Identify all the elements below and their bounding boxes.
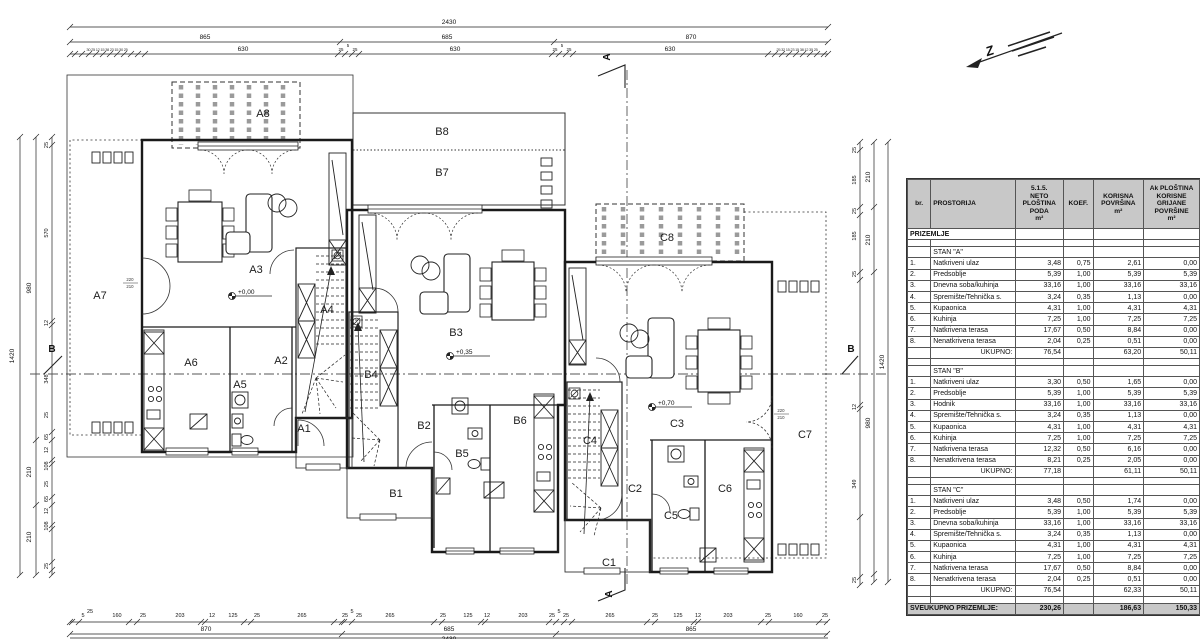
level-label-c: +0,70 [658, 400, 675, 407]
dim-label: 25 [140, 613, 146, 619]
dim-label: 210 [865, 171, 872, 182]
total-row: UKUPNO:77,1861,1150,11 [908, 466, 1200, 477]
dim-label: 12 [44, 508, 50, 514]
dim-label: 570 [44, 228, 50, 237]
table-row: 5.Kupaonica4,311,004,314,31 [908, 422, 1200, 433]
room-label-b7: B7 [435, 167, 448, 179]
dim-label: 348 [44, 374, 50, 383]
dim-label: 25 [440, 613, 446, 619]
dim-label: 5 [347, 43, 350, 48]
table-row: 7.Natkrivena terasa12,320,506,160,00 [908, 444, 1200, 455]
gap-row [908, 477, 1200, 484]
level-label-a: +0,00 [238, 289, 255, 296]
door-tag: 210 [777, 415, 785, 420]
table-row: 6.Kuhinja7,251,007,257,25 [908, 552, 1200, 563]
dim-label: 25 [342, 613, 348, 619]
dim-label: 1420 [9, 348, 16, 363]
dim-label: 65 [44, 434, 50, 440]
furniture [166, 190, 752, 404]
table-row: 3.Dnevna soba/kuhinja33,161,0033,1633,16 [908, 280, 1200, 291]
dim-label: 12 [44, 320, 50, 326]
dim-label: 980 [865, 417, 872, 428]
table-row: 2.Predsoblje5,391,005,395,39 [908, 507, 1200, 518]
dim-label: 5 [350, 609, 353, 615]
room-label-b2: B2 [417, 420, 430, 432]
table-row: 8.Nenatkrivena terasa2,040,250,510,00 [908, 336, 1200, 347]
section-title-row: STAN "A" [908, 247, 1200, 258]
dim-label: 12 [209, 613, 215, 619]
dim-label: 25 [563, 613, 569, 619]
dim-label: 125 [463, 613, 472, 619]
gap-row [908, 596, 1200, 603]
room-label-b6: B6 [513, 415, 526, 427]
north-label: Z [983, 42, 997, 59]
room-label-b8: B8 [435, 126, 448, 138]
table-row: 5.Kupaonica4,311,004,314,31 [908, 540, 1200, 551]
room-label-a8: A8 [256, 108, 269, 120]
dim-label: 25 [356, 613, 362, 619]
table-row: 8.Nenatkrivena terasa2,040,250,510,00 [908, 574, 1200, 585]
grand-total-row: SVEUKUPNO PRIZEMLJE:230,26186,63150,33 [908, 603, 1200, 614]
dim-label: 865 [200, 34, 211, 41]
dim-label: 203 [723, 613, 732, 619]
room-label-b5: B5 [455, 448, 468, 460]
door-tag: 220 [777, 408, 785, 413]
dim-label: 2430 [442, 19, 457, 26]
room-label-a5: A5 [233, 379, 246, 391]
dim-label: 25 [353, 47, 358, 52]
level-label-b: +0,35 [456, 349, 473, 356]
gap-row [908, 240, 1200, 247]
floor-row: PRIZEMLJE [908, 229, 1200, 240]
room-label-a3: A3 [249, 264, 262, 276]
dim-label: 25 [852, 147, 858, 153]
dim-label: 685 [444, 626, 455, 633]
dim-label: 160 [112, 613, 121, 619]
table-row: 2.Predsoblje5,391,005,395,39 [908, 269, 1200, 280]
table-row: 7.Natkrivena terasa17,670,508,840,00 [908, 563, 1200, 574]
table-row: 6.Kuhinja7,251,007,257,25 [908, 433, 1200, 444]
table-row: 3.Dnevna soba/kuhinja33,161,0033,1633,16 [908, 518, 1200, 529]
table-row: 6.Kuhinja7,251,007,257,25 [908, 314, 1200, 325]
dim-label: 185 [852, 175, 858, 184]
section-line-bb [30, 356, 886, 374]
dim-label: 25 [87, 609, 93, 615]
dim-label: 685 [442, 34, 453, 41]
terrace-b8-b7 [353, 113, 565, 205]
room-label-c7: C7 [798, 429, 812, 441]
table-row: 1.Natkriveni ulaz3,480,752,610,00 [908, 258, 1200, 269]
total-row: UKUPNO:76,5463,2050,11 [908, 347, 1200, 358]
dim-label: 25 [652, 613, 658, 619]
table-header-row: br.PROSTORIJA5.1.5.NETOPLOŠTINAPODAm²KOE… [908, 180, 1200, 229]
roof-outline [67, 75, 353, 457]
dim-label: 203 [175, 613, 184, 619]
gap-row [908, 359, 1200, 366]
room-label-a4: A4 [320, 304, 333, 316]
dim-label: 630 [665, 46, 676, 53]
dim-label: 25 [822, 613, 828, 619]
dim-label: 5 [561, 43, 564, 48]
room-label-b1: B1 [389, 488, 402, 500]
room-label-a1: A1 [297, 423, 310, 435]
dim-label: 349 [852, 479, 858, 488]
dim-label: 25 [44, 412, 50, 418]
room-label-c1: C1 [602, 557, 616, 569]
dim-label: 125 [673, 613, 682, 619]
dim-label: 210 [865, 234, 872, 245]
room-label-a2: A2 [274, 355, 287, 367]
drawing-sheet: { "plan": { "rooms": { "a1":"A1","a2":"A… [0, 0, 1200, 639]
dim-label: 108 [44, 461, 50, 470]
dim-label: 12 [484, 613, 490, 619]
room-label-c4: C4 [583, 435, 597, 447]
dim-label: 125 [228, 613, 237, 619]
dim-label: 160 [793, 613, 802, 619]
dim-label: 265 [605, 613, 614, 619]
dim-label: 25 [339, 47, 344, 52]
dim-label: 203 [518, 613, 527, 619]
table-row: 3.Hodnik33,161,0033,1633,16 [908, 399, 1200, 410]
room-label-a7: A7 [93, 290, 106, 302]
dim-label: 25 [553, 47, 558, 52]
door-tag: 220 [126, 277, 134, 282]
room-label-c8: C8 [660, 232, 674, 244]
dim-label: 12 [695, 613, 701, 619]
door-tag: 210 [126, 284, 134, 289]
dim-label: 5 [557, 609, 560, 615]
dim-label: 5 [81, 613, 84, 619]
dim-label: 25 [44, 563, 50, 569]
total-row: UKUPNO:76,5462,3350,11 [908, 585, 1200, 596]
dim-label: 980 [26, 282, 33, 293]
table-row: 5.Kupaonica4,311,004,314,31 [908, 303, 1200, 314]
dim-label: 25 [549, 613, 555, 619]
room-label-c5: C5 [664, 510, 678, 522]
dim-label: 630 [238, 46, 249, 53]
table-row: 4.Spremište/Tehnička s.3,240,351,130,00 [908, 410, 1200, 421]
section-label-b-right: B [847, 344, 854, 355]
dim-label: 25 [567, 47, 572, 52]
dim-label: 210 [26, 531, 33, 542]
dim-label: 108 [44, 521, 50, 530]
dim-label: 865 [686, 626, 697, 633]
dim-label: 25 32 15 23 15 38 12 35 25 [776, 47, 818, 52]
table-row: 1.Natkriveni ulaz3,480,501,740,00 [908, 496, 1200, 507]
dim-label: 25 [44, 481, 50, 487]
table-row: 1.Natkriveni ulaz3,300,501,650,00 [908, 377, 1200, 388]
table-row: 4.Spremište/Tehnička s.3,240,351,130,00 [908, 529, 1200, 540]
room-label-c6: C6 [718, 483, 732, 495]
dim-label: 1420 [879, 354, 886, 369]
table-row: 7.Natkrivena terasa17,670,508,840,00 [908, 325, 1200, 336]
dim-label: 25 [765, 613, 771, 619]
section-title-row: STAN "C" [908, 484, 1200, 495]
section-title-row: STAN "B" [908, 366, 1200, 377]
dim-label: 25 [852, 271, 858, 277]
area-table-grid: br.PROSTORIJA5.1.5.NETOPLOŠTINAPODAm²KOE… [907, 179, 1200, 615]
north-arrow [966, 32, 1062, 68]
dim-label: 630 [450, 46, 461, 53]
dim-label: 12 [852, 404, 858, 410]
dim-label: 185 [852, 231, 858, 240]
dim-label: 870 [201, 626, 212, 633]
table-row: 2.Predsoblje5,391,005,395,39 [908, 388, 1200, 399]
room-label-b3: B3 [449, 327, 462, 339]
table-row: 4.Spremište/Tehnička s.3,240,351,130,00 [908, 291, 1200, 302]
room-label-c2: C2 [628, 483, 642, 495]
section-label-a-bottom: A [604, 590, 615, 597]
dim-label: 25 [254, 613, 260, 619]
dim-label: 25 [852, 208, 858, 214]
dim-label: 265 [385, 613, 394, 619]
dim-label: 25 [44, 142, 50, 148]
dim-label: 265 [297, 613, 306, 619]
dim-label: 210 [26, 466, 33, 477]
room-label-a6: A6 [184, 357, 197, 369]
dim-label: 65 [44, 496, 50, 502]
section-label-a-top: A [602, 53, 613, 60]
area-table: br.PROSTORIJA5.1.5.NETOPLOŠTINAPODAm²KOE… [906, 178, 1200, 616]
dim-label: 30 25 12 15 38 23 15 30 25 [86, 47, 128, 52]
room-label-b4: B4 [364, 369, 377, 381]
dim-label: 870 [686, 34, 697, 41]
table-row: 8.Nenatkrivena terasa8,210,252,050,00 [908, 455, 1200, 466]
section-label-b-left: B [48, 344, 55, 355]
dim-label: 12 [44, 447, 50, 453]
dim-label: 25 [852, 577, 858, 583]
pergola-a8 [172, 82, 300, 148]
room-label-c3: C3 [670, 418, 684, 430]
